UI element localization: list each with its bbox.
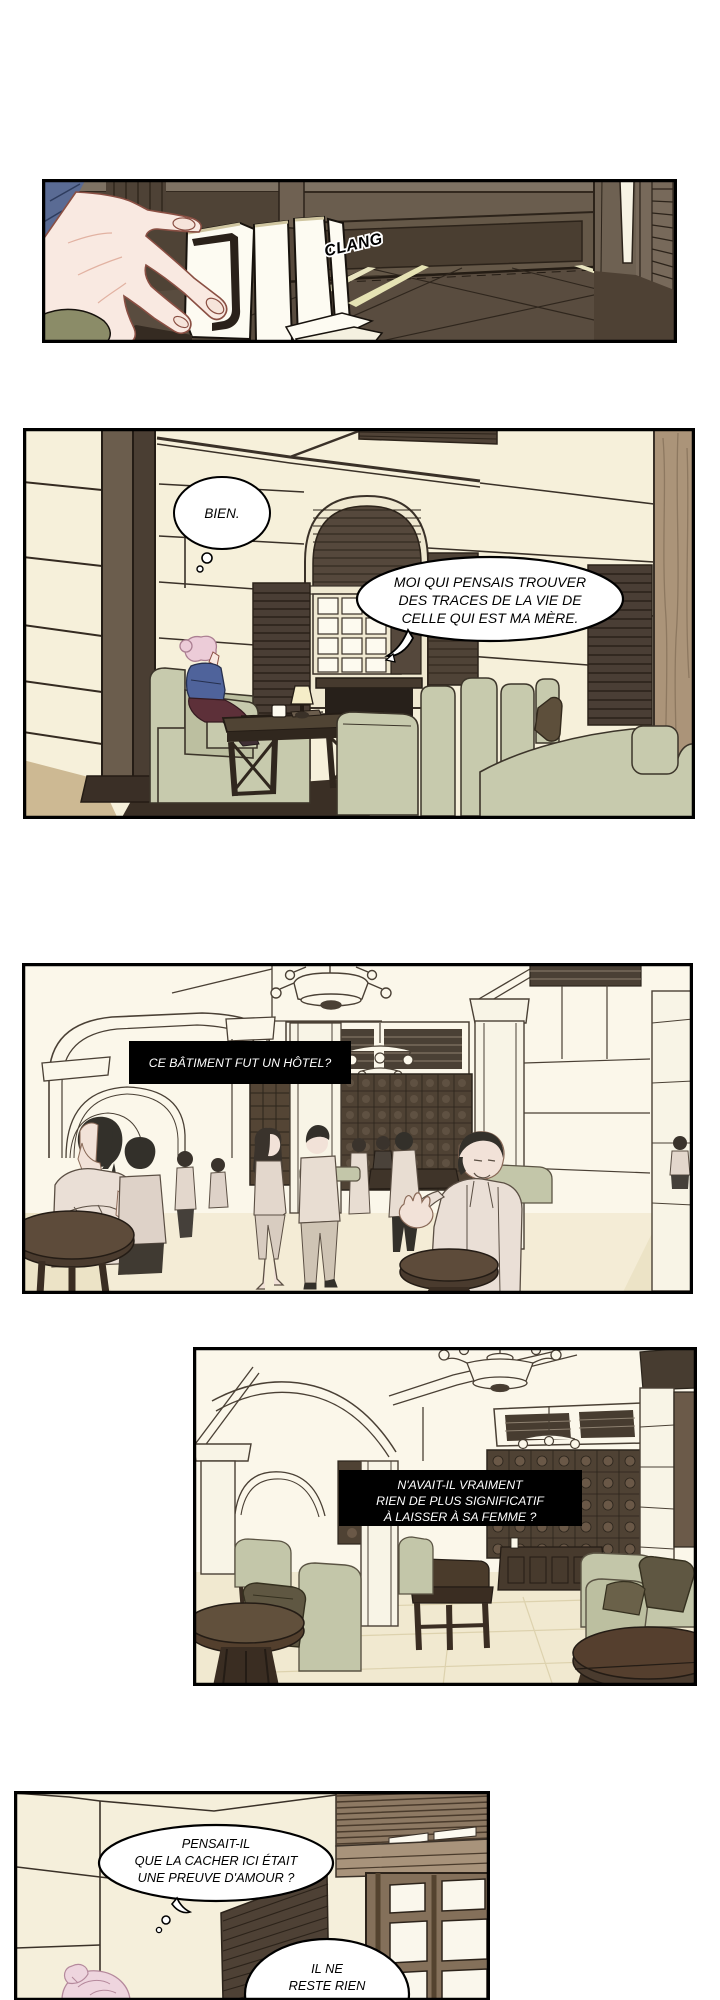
svg-text:RESTE RIEN: RESTE RIEN (289, 1978, 367, 1993)
svg-text:BIEN.: BIEN. (204, 506, 239, 521)
svg-text:CE BÂTIMENT FUT UN HÔTEL?: CE BÂTIMENT FUT UN HÔTEL? (149, 1055, 332, 1070)
svg-text:À LAISSER À SA FEMME ?: À LAISSER À SA FEMME ? (383, 1509, 537, 1524)
svg-text:QUE LA CACHER ICI ÉTAIT: QUE LA CACHER ICI ÉTAIT (135, 1853, 299, 1868)
svg-text:CELLE QUI EST MA MÈRE.: CELLE QUI EST MA MÈRE. (402, 610, 579, 626)
svg-text:DES TRACES DE LA VIE DE: DES TRACES DE LA VIE DE (398, 592, 582, 608)
svg-text:RIEN DE PLUS SIGNIFICATIF: RIEN DE PLUS SIGNIFICATIF (376, 1494, 545, 1508)
svg-text:PENSAIT-IL: PENSAIT-IL (182, 1836, 251, 1851)
svg-text:IL NE: IL NE (311, 1961, 343, 1976)
svg-text:N'AVAIT-IL VRAIMENT: N'AVAIT-IL VRAIMENT (397, 1478, 524, 1492)
svg-text:MOI QUI PENSAIS TROUVER: MOI QUI PENSAIS TROUVER (394, 574, 586, 590)
svg-text:UNE PREUVE D'AMOUR ?: UNE PREUVE D'AMOUR ? (138, 1870, 296, 1885)
